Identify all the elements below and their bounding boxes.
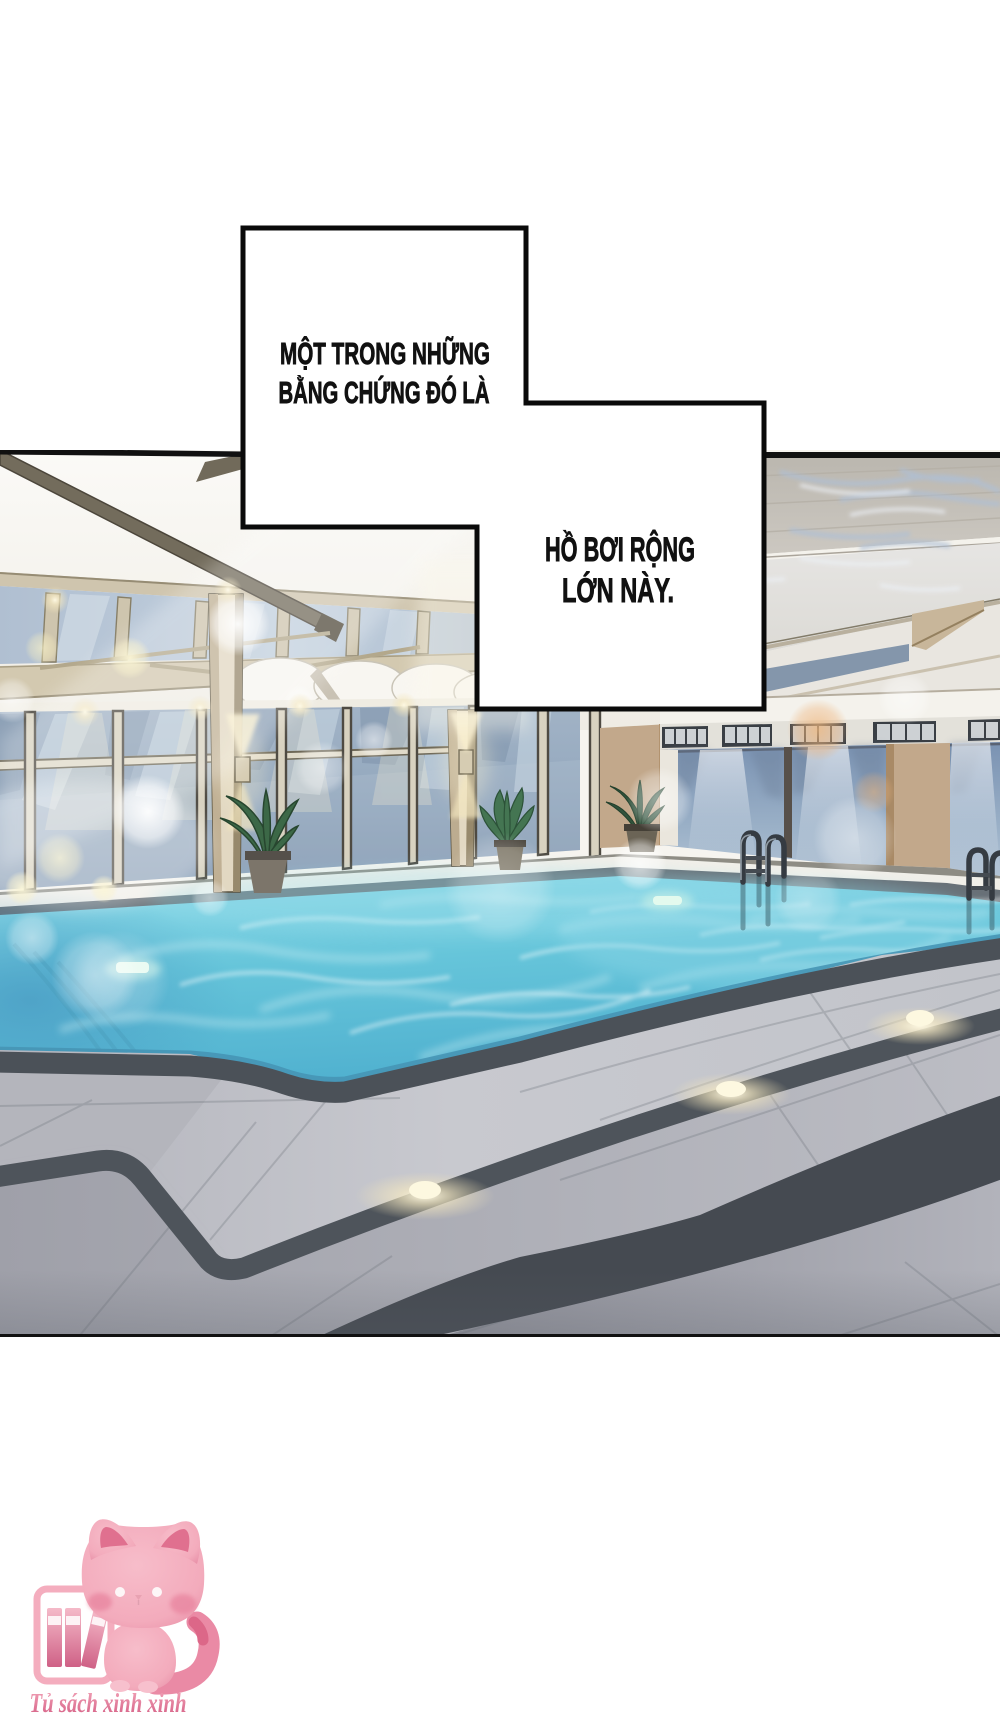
svg-text:Tủ sách xinh xinh: Tủ sách xinh xinh	[30, 1688, 187, 1718]
svg-text:LỚN NÀY.: LỚN NÀY.	[562, 572, 674, 610]
svg-text:MỘT TRONG NHỮNG: MỘT TRONG NHỮNG	[280, 335, 490, 371]
svg-text:BẰNG CHỨNG ĐÓ LÀ: BẰNG CHỨNG ĐÓ LÀ	[279, 374, 490, 410]
svg-text:HỒ BƠI RỘNG: HỒ BƠI RỘNG	[545, 530, 695, 569]
